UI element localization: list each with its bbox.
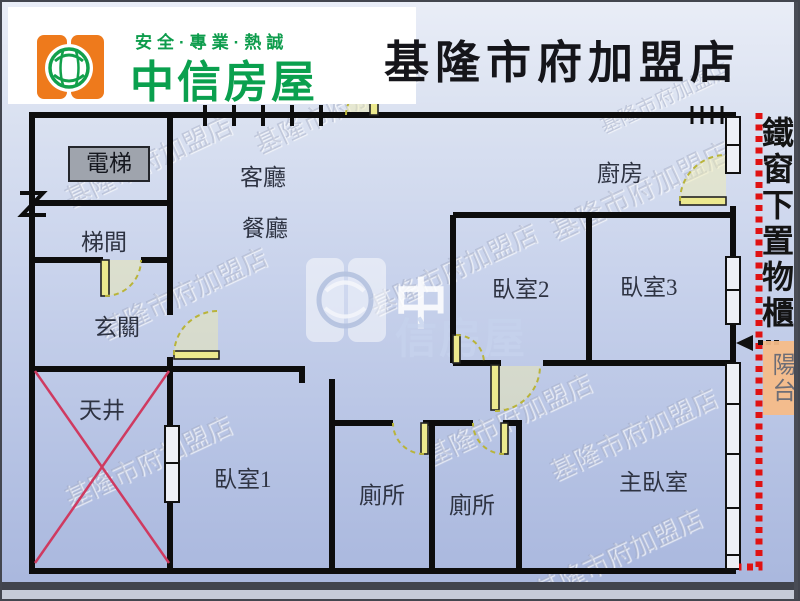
frame-edge-right <box>794 2 798 601</box>
room-label-living: 客廳 <box>240 158 286 192</box>
room-label-bedroom1: 臥室1 <box>214 460 272 494</box>
brand-name: 中信房屋 <box>130 46 318 110</box>
room-label-bedroom3: 臥室3 <box>620 268 678 302</box>
store-name-title: 基隆市府加盟店 <box>384 26 741 91</box>
room-label-master: 主臥室 <box>619 463 688 497</box>
room-label-light-well: 天井 <box>79 391 125 425</box>
frame-band-light <box>2 590 800 599</box>
frame-band-dark <box>2 582 800 590</box>
room-label-dining: 餐廳 <box>242 209 288 243</box>
floorplan-image: 基隆市府加盟店 基隆市府加盟店 基隆市府加盟店 基隆市府加盟店 基隆市府加盟店 … <box>0 0 800 601</box>
room-label-kitchen: 廚房 <box>597 154 643 188</box>
iron-window-note: 鐵窗下置物櫃 <box>753 116 799 366</box>
room-label-toilet-b: 廁所 <box>449 486 495 520</box>
room-label-toilet-a: 廁所 <box>359 476 405 510</box>
room-label-entry: 玄關 <box>94 308 140 342</box>
room-label-bedroom2: 臥室2 <box>492 270 550 304</box>
room-label-stairwell: 梯間 <box>81 223 127 257</box>
room-label-elevator: 電梯 <box>68 146 150 182</box>
